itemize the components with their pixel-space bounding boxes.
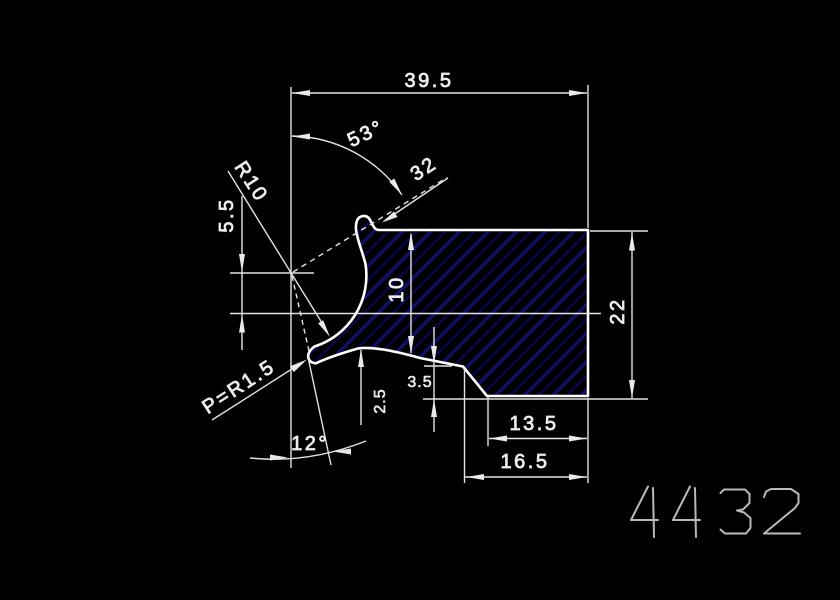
svg-text:32: 32 xyxy=(407,152,442,185)
svg-text:39.5: 39.5 xyxy=(405,70,454,92)
svg-text:2.5: 2.5 xyxy=(372,388,389,413)
svg-text:5.5: 5.5 xyxy=(216,197,238,232)
svg-text:P=R1.5: P=R1.5 xyxy=(199,355,280,418)
svg-text:16.5: 16.5 xyxy=(501,451,550,473)
svg-text:22: 22 xyxy=(607,297,629,324)
svg-text:10: 10 xyxy=(386,275,408,302)
svg-text:3.5: 3.5 xyxy=(407,374,432,391)
svg-text:53°: 53° xyxy=(344,116,388,152)
svg-text:13.5: 13.5 xyxy=(510,413,559,435)
svg-text:12°: 12° xyxy=(291,433,329,455)
